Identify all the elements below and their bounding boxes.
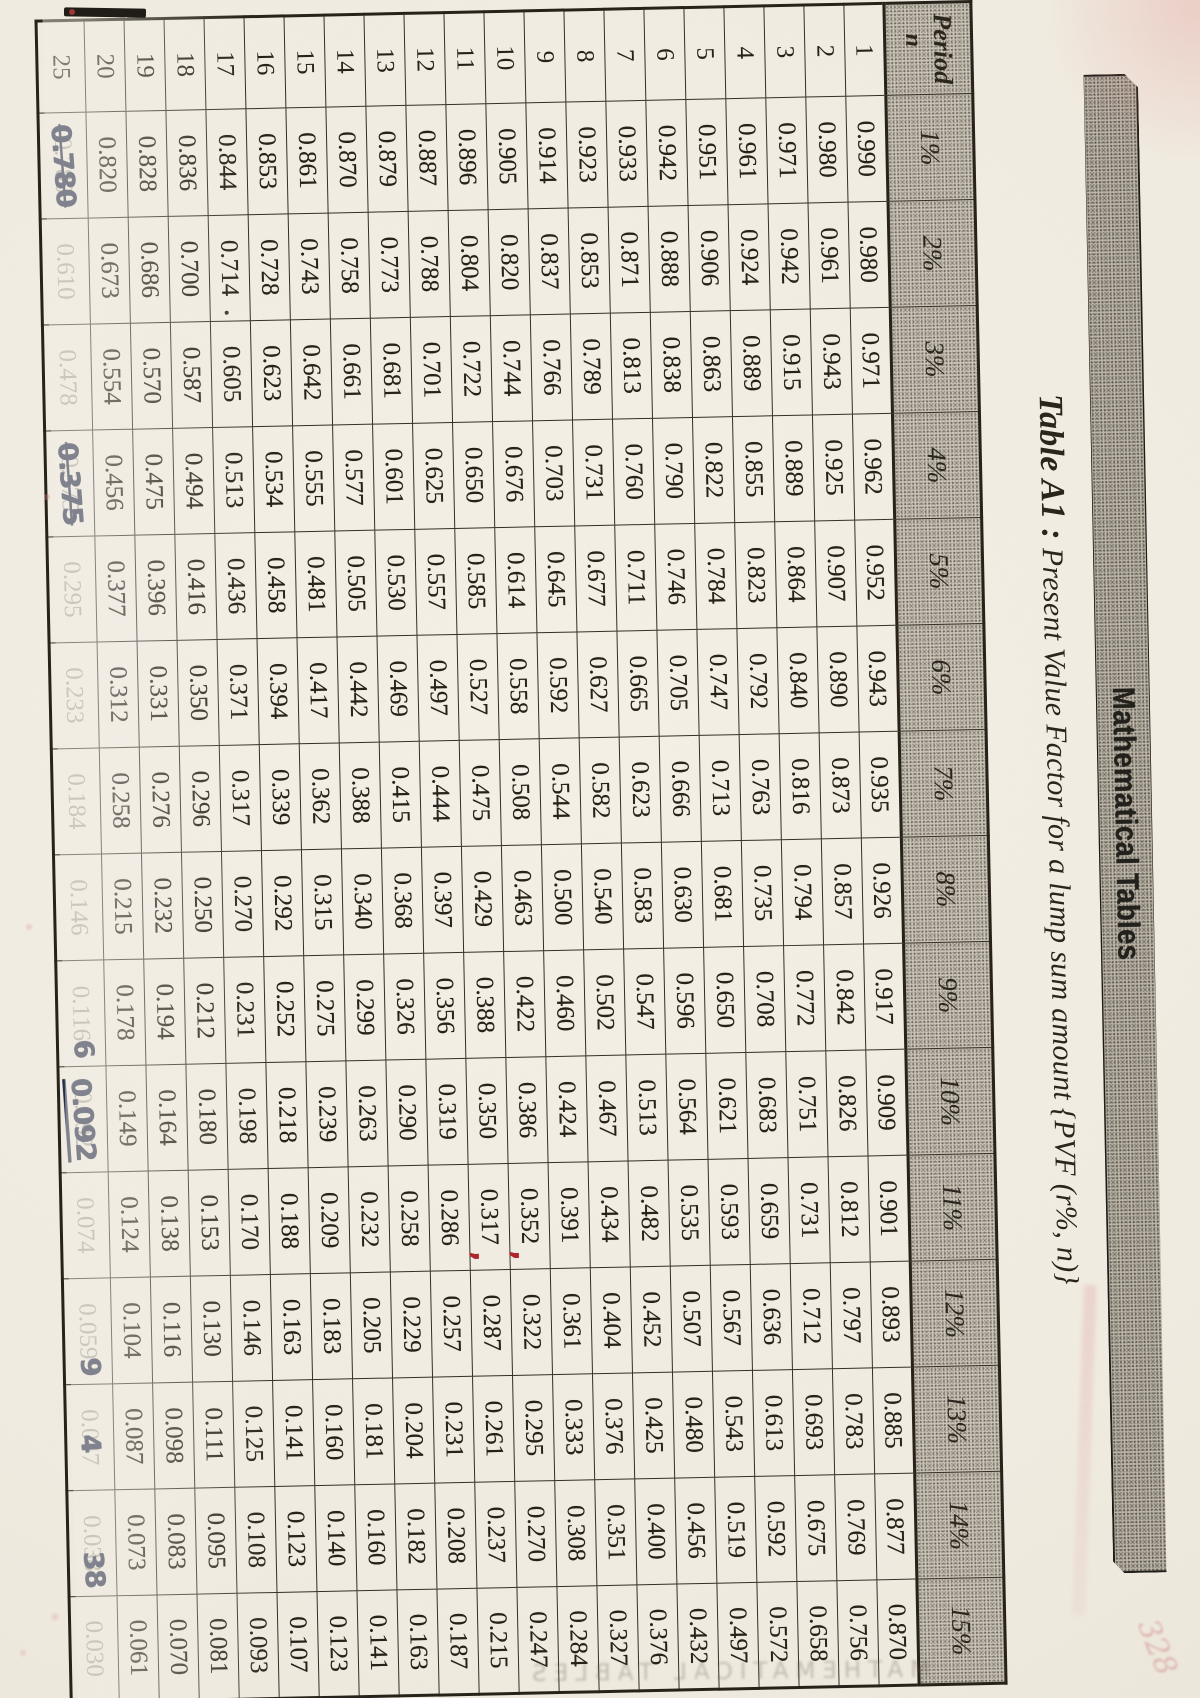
pvf-cell-13-4%: 0.601 <box>373 423 415 530</box>
pvf-value: 0.467 <box>593 1080 621 1137</box>
pvf-cell-16-3%: 0.623 <box>250 320 292 427</box>
period-label-11: 11 <box>444 12 486 105</box>
pvf-value: 0.567 <box>717 1289 745 1346</box>
pvf-value: 0.397 <box>428 871 456 928</box>
pvf-value: 0.863 <box>697 336 725 393</box>
pvf-cell-17-4%: 0.513 <box>213 427 255 534</box>
red-pen-mark: , <box>468 1251 496 1262</box>
pvf-cell-7-5%: 0.711 <box>615 524 657 631</box>
pvf-cell-13-7%: 0.415 <box>379 741 421 848</box>
pvf-value: 0.686 <box>135 241 163 298</box>
pvf-cell-2-4%: 0.925 <box>812 414 854 521</box>
pvf-cell-12-7%: 0.444 <box>419 740 461 847</box>
pvf-cell-8-5%: 0.677 <box>575 525 617 632</box>
rate-header-1%: 1% <box>886 94 975 202</box>
pvf-value: 0.942 <box>775 228 803 285</box>
pvf-value: 0.625 <box>420 448 448 505</box>
pvf-value: 0.350 <box>473 1083 501 1140</box>
pvf-cell-15-4%: 0.555 <box>293 425 335 532</box>
pvf-cell-16-10%: 0.218 <box>266 1062 308 1169</box>
pvf-cell-9-12%: 0.361 <box>550 1268 592 1375</box>
pvf-cell-6-11%: 0.535 <box>668 1159 710 1266</box>
pvf-cell-5-13%: 0.543 <box>712 1370 754 1477</box>
pvf-cell-18-10%: 0.180 <box>186 1063 228 1170</box>
pvf-value: 0.951 <box>693 124 721 181</box>
pvf-value: 0.923 <box>573 126 601 183</box>
pvf-value: 0.693 <box>799 1394 827 1451</box>
period-label-15: 15 <box>284 15 326 108</box>
pvf-cell-18-6%: 0.350 <box>177 639 219 746</box>
pvf-value: 0.208 <box>442 1507 470 1564</box>
pvf-value: 0.728 <box>255 239 283 296</box>
pvf-value: 0.111 <box>200 1407 228 1462</box>
period-label-2: 2 <box>804 4 846 97</box>
pvf-cell-19-15%: 0.070 <box>157 1594 199 1698</box>
pvf-value: 0.194 <box>151 983 179 1040</box>
pvf-value: 0.388 <box>471 977 499 1034</box>
pvf-value: 0.141 <box>280 1405 308 1462</box>
pvf-cell-13-3%: 0.681 <box>370 317 412 424</box>
pvf-cell-4-13%: 0.613 <box>752 1370 794 1477</box>
pvf-cell-1-1%: 0.990 <box>846 95 888 202</box>
pvf-value: 0.434 <box>595 1186 623 1243</box>
pvf-cell-20-15%: 0.061 <box>117 1595 159 1698</box>
pvf-value: 0.813 <box>617 337 645 394</box>
pvf-value: 0.773 <box>375 236 403 293</box>
pvf-cell-3-4%: 0.889 <box>772 415 814 522</box>
pvf-value: 0.735 <box>748 865 776 922</box>
pvf-value: 0.683 <box>753 1077 781 1134</box>
pvf-cell-25-6%: 0.233 <box>49 642 99 749</box>
pvf-value: 0.481 <box>302 556 330 613</box>
period-label-14: 14 <box>324 14 366 107</box>
pvf-value: 0.935 <box>866 756 894 813</box>
period-label-1: 1 <box>844 3 886 96</box>
pvf-cell-1-10%: 0.909 <box>866 1049 908 1156</box>
pvf-value: 0.030 <box>81 1620 109 1677</box>
pvf-value: 0.123 <box>282 1511 310 1568</box>
pvf-value: 0.812 <box>835 1181 863 1238</box>
pvf-value: 0.914 <box>533 127 561 184</box>
pvf-cell-15-6%: 0.417 <box>297 637 339 744</box>
pvf-cell-14-8%: 0.340 <box>341 848 383 955</box>
pvf-cell-4-6%: 0.792 <box>737 628 779 735</box>
pvf-value: 0.540 <box>588 868 616 925</box>
pvf-cell-15-8%: 0.315 <box>301 849 343 956</box>
pvf-value: 0.232 <box>355 1191 383 1248</box>
pvf-cell-18-14%: 0.095 <box>195 1487 237 1594</box>
pvf-cell-14-2%: 0.758 <box>328 212 370 319</box>
scanned-page: Mathematical Tables Table A1 : Present V… <box>0 0 1200 1698</box>
pvf-value: 0.943 <box>863 650 891 707</box>
pvf-value: 0.760 <box>620 443 648 500</box>
pvf-cell-25-11%: 0.074 <box>60 1172 110 1279</box>
pvf-cell-16-1%: 0.853 <box>246 108 288 215</box>
pvf-cell-12-5%: 0.557 <box>415 528 457 635</box>
pvf-value: 0.187 <box>444 1613 472 1670</box>
period-label-5: 5 <box>684 7 726 100</box>
pvf-value: 0.507 <box>677 1290 705 1347</box>
pvf-value: 0.340 <box>348 873 376 930</box>
pvf-value: 0.400 <box>642 1503 670 1560</box>
pvf-cell-1-14%: 0.877 <box>875 1473 917 1580</box>
pvf-cell-10-12%: 0.322 <box>510 1269 552 1376</box>
pvf-cell-2-3%: 0.943 <box>810 308 852 415</box>
pvf-cell-20-4%: 0.456 <box>93 429 135 536</box>
pvf-value: 0.456 <box>100 454 128 511</box>
pvf-value: 0.853 <box>575 232 603 289</box>
pvf-cell-20-10%: 0.149 <box>106 1065 148 1172</box>
pvf-cell-7-13%: 0.425 <box>632 1372 674 1479</box>
pvf-value: 0.627 <box>584 656 612 713</box>
pvf-cell-3-10%: 0.751 <box>786 1051 828 1158</box>
pvf-value: 0.312 <box>104 666 132 723</box>
pvf-cell-6-13%: 0.480 <box>672 1371 714 1478</box>
pvf-value: 0.070 <box>164 1619 192 1676</box>
pvf-cell-16-13%: 0.141 <box>273 1380 315 1487</box>
pvf-cell-16-6%: 0.394 <box>257 638 299 745</box>
pvf-cell-20-11%: 0.124 <box>108 1171 150 1278</box>
pvf-value: 0.826 <box>833 1075 861 1132</box>
pvf-cell-19-12%: 0.116 <box>150 1276 192 1383</box>
pvf-value: 0.475 <box>140 453 168 510</box>
pvf-value: 0.209 <box>315 1192 343 1249</box>
pvf-cell-18-13%: 0.111 <box>193 1381 235 1488</box>
pvf-cell-6-15%: 0.432 <box>677 1583 719 1690</box>
pvf-cell-11-5%: 0.585 <box>455 528 497 635</box>
pvf-cell-10-9%: 0.422 <box>504 951 546 1058</box>
pvf-value: 0.623 <box>257 345 285 402</box>
pvf-cell-11-1%: 0.896 <box>446 104 488 211</box>
pvf-cell-11-14%: 0.237 <box>475 1481 517 1588</box>
pvf-value: 0.980 <box>855 226 883 283</box>
pvf-cell-7-3%: 0.813 <box>610 312 652 419</box>
pvf-value: 0.233 <box>61 667 89 724</box>
pvf-cell-12-11%: 0.286 <box>428 1164 470 1271</box>
pvf-cell-8-2%: 0.853 <box>568 207 610 314</box>
pvf-cell-6-1%: 0.942 <box>646 100 688 207</box>
rate-header-3%: 3% <box>890 305 979 413</box>
pvf-value: 0.893 <box>877 1286 905 1343</box>
pvf-value: 0.952 <box>861 544 889 601</box>
pvf-value: 0.587 <box>177 347 205 404</box>
pvf-cell-13-5%: 0.530 <box>375 529 417 636</box>
pvf-value: 0.837 <box>535 233 563 290</box>
pvf-cell-15-7%: 0.362 <box>299 743 341 850</box>
pvf-cell-12-8%: 0.397 <box>421 846 463 953</box>
pvf-value: 0.198 <box>233 1088 261 1145</box>
pvf-cell-20-1%: 0.820 <box>86 111 128 218</box>
pvf-cell-14-11%: 0.232 <box>348 1166 390 1273</box>
pvf-cell-3-5%: 0.864 <box>775 521 817 628</box>
pvf-cell-9-11%: 0.391 <box>548 1162 590 1269</box>
pvf-cell-20-13%: 0.087 <box>113 1383 155 1490</box>
pvf-value: 0.295 <box>520 1400 548 1457</box>
pvf-value: 0.681 <box>377 342 405 399</box>
pvf-cell-4-4%: 0.855 <box>732 416 774 523</box>
pvf-value: 0.889 <box>737 335 765 392</box>
pvf-value: 0.714 <box>215 240 243 297</box>
pvf-value: 0.258 <box>395 1190 423 1247</box>
pvf-cell-12-2%: 0.788 <box>408 211 450 318</box>
pvf-value: 0.270 <box>228 876 256 933</box>
pvf-cell-4-7%: 0.763 <box>739 734 781 841</box>
page-title: Table A1 : Present Value Factor for a lu… <box>1022 0 1096 1689</box>
pvf-value: 0.905 <box>493 128 521 185</box>
pvf-value: 0.792 <box>744 653 772 710</box>
rate-header-6%: 6% <box>897 623 986 731</box>
pvf-value: 0.756 <box>844 1604 872 1661</box>
pvf-value: 0.463 <box>508 870 536 927</box>
pvf-cell-14-14%: 0.160 <box>355 1484 397 1591</box>
pvf-value: 0.286 <box>435 1189 463 1246</box>
pvf-value: 0.711 <box>622 550 650 606</box>
pvf-cell-5-9%: 0.650 <box>704 947 746 1054</box>
pvf-value: 0.888 <box>655 231 683 288</box>
pvf-cell-1-12%: 0.893 <box>870 1261 912 1368</box>
pvf-value: 0.276 <box>146 771 174 828</box>
pvf-cell-15-2%: 0.743 <box>288 213 330 320</box>
pvf-value: 0.376 <box>644 1609 672 1666</box>
pvf-value: 0.530 <box>382 554 410 611</box>
pvf-value: 0.500 <box>548 869 576 926</box>
pvf-value: 0.758 <box>335 237 363 294</box>
pvf-value: 0.497 <box>424 659 452 716</box>
rate-header-13%: 13% <box>912 1365 1001 1473</box>
pvf-value: 0.284 <box>564 1610 592 1667</box>
pvf-cell-1-15%: 0.870 <box>877 1579 919 1686</box>
pvf-value: 0.287 <box>477 1294 505 1351</box>
pvf-cell-7-9%: 0.547 <box>624 948 666 1055</box>
pvf-value: 0.160 <box>362 1509 390 1566</box>
pvf-value: 0.149 <box>113 1090 141 1147</box>
pvf-value: 0.907 <box>822 545 850 602</box>
pvf-value: 0.797 <box>837 1287 865 1344</box>
pvf-value: 0.623 <box>626 761 654 818</box>
pvf-cell-16-2%: 0.728 <box>248 214 290 321</box>
pvf-cell-6-14%: 0.456 <box>675 1477 717 1584</box>
pvf-cell-8-10%: 0.467 <box>586 1055 628 1162</box>
pvf-cell-5-7%: 0.713 <box>699 735 741 842</box>
pvf-cell-13-12%: 0.229 <box>390 1271 432 1378</box>
pvf-value: 0.250 <box>188 876 216 933</box>
pvf-cell-15-12%: 0.183 <box>310 1273 352 1380</box>
pvf-value: 0.104 <box>117 1302 145 1359</box>
pvf-cell-11-6%: 0.527 <box>457 634 499 741</box>
pvf-cell-5-10%: 0.621 <box>706 1052 748 1159</box>
pvf-value: 0.990 <box>852 120 880 177</box>
pvf-value: 0.497 <box>724 1607 752 1664</box>
pvf-cell-15-9%: 0.275 <box>304 955 346 1062</box>
pvf-value: 0.350 <box>184 664 212 721</box>
pvf-value: 0.583 <box>628 867 656 924</box>
rate-header-4%: 4% <box>892 411 981 519</box>
pvf-cell-4-2%: 0.924 <box>728 204 770 311</box>
pvf-cell-1-11%: 0.901 <box>868 1155 910 1262</box>
pvf-cell-19-10%: 0.164 <box>146 1064 188 1171</box>
pvf-cell-6-9%: 0.596 <box>664 947 706 1054</box>
pvf-cell-19-4%: 0.475 <box>133 428 175 535</box>
pvf-cell-18-12%: 0.130 <box>190 1275 232 1382</box>
pvf-cell-17-8%: 0.270 <box>221 851 263 958</box>
pvf-value: 0.295 <box>58 561 86 618</box>
pvf-value: 0.356 <box>431 977 459 1034</box>
pen-correction: 0.780 <box>37 112 91 220</box>
pvf-cell-5-6%: 0.747 <box>697 629 739 736</box>
pvf-value: 0.513 <box>633 1079 661 1136</box>
pvf-value: 0.557 <box>422 553 450 610</box>
pvf-value: 0.877 <box>881 1498 909 1555</box>
pvf-value: 0.746 <box>662 548 690 605</box>
pvf-value: 0.820 <box>93 136 121 193</box>
period-label-17: 17 <box>204 17 246 110</box>
pvf-value: 0.478 <box>54 349 82 406</box>
pvf-cell-17-11%: 0.170 <box>228 1169 270 1276</box>
pvf-cell-17-3%: 0.605 <box>210 321 252 428</box>
pvf-cell-16-12%: 0.163 <box>270 1274 312 1381</box>
pvf-cell-18-7%: 0.296 <box>179 745 221 852</box>
pvf-cell-17-13%: 0.125 <box>233 1380 275 1487</box>
pvf-table: Period n 1%2%3%4%5%6%7%8%9%10%11%12%13%1… <box>35 0 1008 1698</box>
pvf-value: 0.508 <box>506 764 534 821</box>
pvf-cell-25-15%: 0.030 <box>69 1596 119 1698</box>
pvf-cell-12-3%: 0.701 <box>410 317 452 424</box>
rate-header-15%: 15% <box>917 1577 1006 1685</box>
corner-label-period: Period <box>928 3 956 94</box>
pvf-cell-5-11%: 0.593 <box>708 1158 750 1265</box>
pvf-value: 0.621 <box>713 1077 741 1134</box>
pvf-cell-18-9%: 0.212 <box>184 957 226 1064</box>
pvf-cell-17-15%: 0.093 <box>237 1592 279 1698</box>
pvf-cell-2-15%: 0.756 <box>837 1580 879 1687</box>
pvf-value: 0.942 <box>653 125 681 182</box>
pvf-value: 0.747 <box>704 654 732 711</box>
pvf-cell-20-14%: 0.073 <box>115 1489 157 1596</box>
pvf-value: 0.961 <box>733 123 761 180</box>
pvf-value: 0.961 <box>815 227 843 284</box>
pvf-value: 0.943 <box>817 333 845 390</box>
pvf-cell-17-2%: 0.714 <box>208 215 250 322</box>
pvf-cell-9-2%: 0.837 <box>528 208 570 315</box>
pen-correction: 0.375 <box>43 429 97 537</box>
pvf-cell-17-6%: 0.371 <box>217 639 259 746</box>
pvf-cell-19-2%: 0.686 <box>128 216 170 323</box>
pvf-cell-10-7%: 0.508 <box>499 739 541 846</box>
pvf-cell-11-3%: 0.722 <box>450 316 492 423</box>
pvf-value: 0.666 <box>666 760 694 817</box>
pvf-cell-13-10%: 0.290 <box>386 1059 428 1166</box>
pvf-cell-11-2%: 0.804 <box>448 210 490 317</box>
pvf-cell-11-10%: 0.350 <box>466 1058 508 1165</box>
pvf-value: 0.424 <box>553 1081 581 1138</box>
pvf-cell-8-11%: 0.434 <box>588 1161 630 1268</box>
pvf-value: 0.906 <box>695 230 723 287</box>
pvf-cell-2-6%: 0.890 <box>817 626 859 733</box>
pvf-cell-18-4%: 0.494 <box>173 428 215 535</box>
pvf-cell-8-15%: 0.327 <box>597 1585 639 1692</box>
pvf-value: 0.673 <box>95 242 123 299</box>
pen-correction: 38 <box>66 1489 120 1597</box>
pvf-value: 0.534 <box>260 451 288 508</box>
pvf-cell-17-12%: 0.146 <box>230 1274 272 1381</box>
pvf-cell-15-13%: 0.160 <box>313 1379 355 1486</box>
pvf-cell-11-8%: 0.429 <box>461 846 503 953</box>
pvf-value: 0.146 <box>237 1300 265 1357</box>
pvf-cell-10-6%: 0.558 <box>497 633 539 740</box>
period-label-10: 10 <box>484 11 526 104</box>
pvf-cell-14-10%: 0.263 <box>346 1060 388 1167</box>
pvf-cell-12-12%: 0.257 <box>430 1270 472 1377</box>
pen-correction: 4 <box>63 1383 117 1491</box>
pvf-value: 0.636 <box>757 1289 785 1346</box>
period-label-7: 7 <box>604 8 646 101</box>
pvf-cell-9-9%: 0.460 <box>544 950 586 1057</box>
pvf-cell-10-14%: 0.270 <box>515 1481 557 1588</box>
pvf-value: 0.138 <box>155 1195 183 1252</box>
pvf-cell-14-3%: 0.661 <box>330 318 372 425</box>
pvf-value: 0.790 <box>660 442 688 499</box>
pvf-cell-25-13%: 0.0474 <box>65 1384 115 1491</box>
pvf-value: 0.125 <box>240 1405 268 1462</box>
pvf-cell-2-10%: 0.826 <box>826 1050 868 1157</box>
pvf-value: 0.870 <box>333 131 361 188</box>
pvf-cell-25-7%: 0.184 <box>51 748 101 855</box>
pvf-cell-17-1%: 0.844 <box>206 109 248 216</box>
pvf-value: 0.232 <box>149 877 177 934</box>
pvf-value: 0.596 <box>671 972 699 1029</box>
pvf-cell-2-13%: 0.783 <box>832 1368 874 1475</box>
pvf-value: 0.543 <box>719 1395 747 1452</box>
pvf-cell-9-3%: 0.766 <box>530 314 572 421</box>
pvf-cell-25-5%: 0.295 <box>47 536 97 643</box>
pvf-value: 0.362 <box>306 768 334 825</box>
pvf-cell-9-4%: 0.703 <box>533 420 575 527</box>
pvf-value: 0.469 <box>384 660 412 717</box>
pvf-cell-8-14%: 0.351 <box>595 1479 637 1586</box>
pvf-cell-5-3%: 0.863 <box>690 311 732 418</box>
pvf-cell-15-11%: 0.209 <box>308 1167 350 1274</box>
pvf-cell-7-8%: 0.583 <box>621 842 663 949</box>
pvf-value: 0.258 <box>106 772 134 829</box>
pvf-cell-7-12%: 0.452 <box>630 1266 672 1373</box>
pvf-cell-20-6%: 0.312 <box>97 641 139 748</box>
pvf-cell-5-12%: 0.567 <box>710 1264 752 1371</box>
pvf-cell-6-7%: 0.666 <box>659 735 701 842</box>
pvf-cell-14-13%: 0.181 <box>353 1378 395 1485</box>
pvf-value: 0.415 <box>386 766 414 823</box>
pvf-cell-5-5%: 0.784 <box>695 523 737 630</box>
pvf-cell-19-7%: 0.276 <box>139 746 181 853</box>
pvf-value: 0.108 <box>242 1511 270 1568</box>
pvf-cell-19-5%: 0.396 <box>135 534 177 641</box>
pvf-value: 0.204 <box>400 1402 428 1459</box>
pvf-value: 0.558 <box>504 658 532 715</box>
pvf-value: 0.535 <box>675 1184 703 1241</box>
pvf-value: 0.971 <box>773 122 801 179</box>
pvf-value: 0.480 <box>679 1396 707 1453</box>
pvf-cell-1-2%: 0.980 <box>848 201 890 308</box>
pvf-cell-8-8%: 0.540 <box>581 843 623 950</box>
pvf-value: 0.789 <box>577 338 605 395</box>
pvf-cell-20-2%: 0.673 <box>88 217 130 324</box>
pvf-value: 0.610 <box>52 243 80 300</box>
pvf-value: 0.182 <box>402 1508 430 1565</box>
table-number-label: Table A1 : <box>1032 394 1072 541</box>
pvf-value: 0.788 <box>415 236 443 293</box>
pvf-cell-6-10%: 0.564 <box>666 1053 708 1160</box>
corner-label-n: n <box>900 0 926 95</box>
pvf-value: 0.650 <box>711 972 739 1029</box>
